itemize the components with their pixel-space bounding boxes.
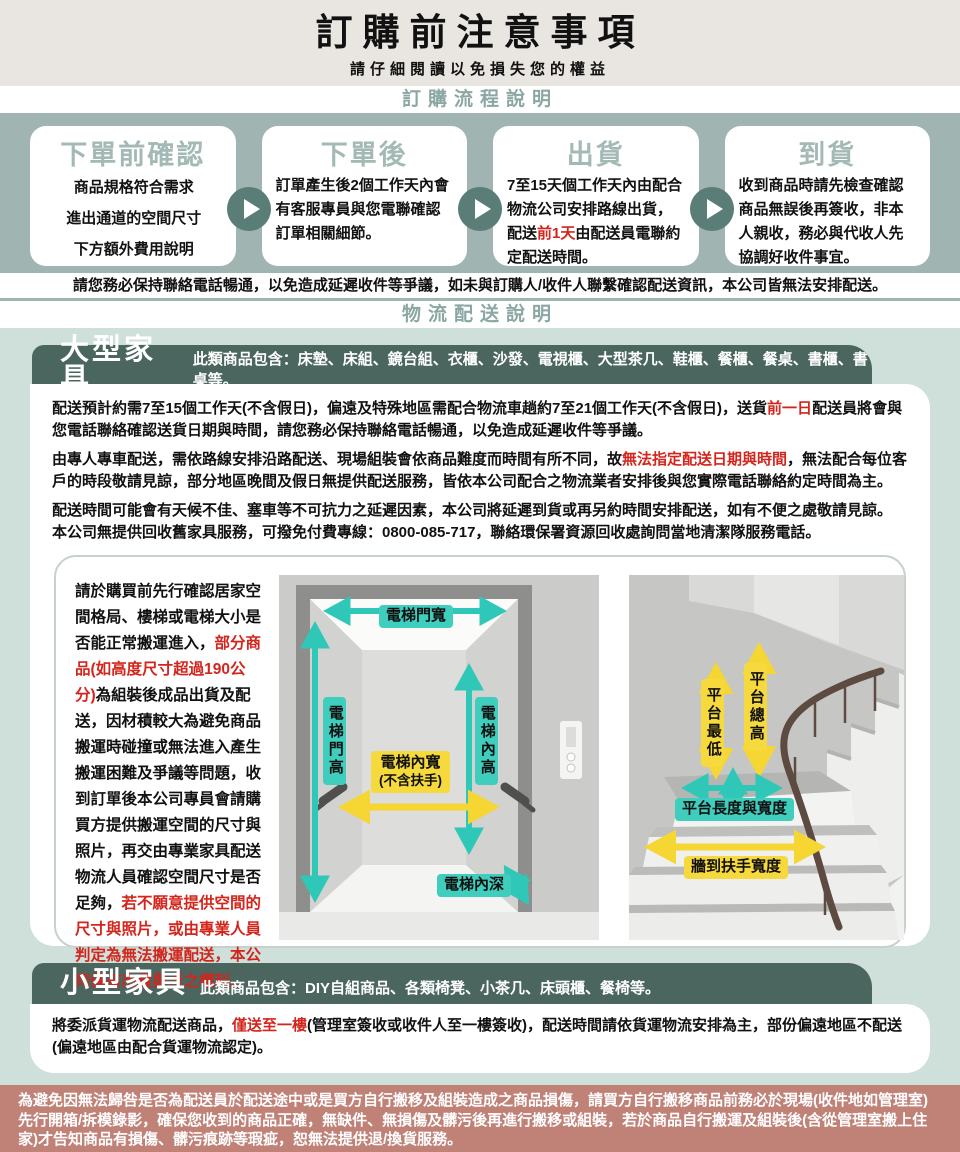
step-card-after-order: 下單後 訂單產生後2個工作天內會有客服專員與您電聯確認訂單相關細節。	[262, 126, 468, 266]
label-platform-total: 平台總高	[744, 663, 767, 751]
step-title: 出貨	[493, 133, 699, 172]
space-confirm-note: 請於購買前先行確認居家空間格局、樓梯或電梯大小是否能正常搬運進入，部分商品(如高…	[73, 575, 271, 946]
page-subtitle: 請仔細閱讀以免損失您的權益	[0, 58, 960, 79]
label-wall-to-rail-width: 牆到扶手寬度	[684, 856, 788, 879]
small-furniture-paragraph: 將委派貨運物流配送商品，僅送至一樓(管理室簽收或收件人至一樓簽收)，配送時間請依…	[52, 1015, 908, 1058]
process-steps-band: 下單前確認 商品規格符合需求進出通道的空間尺寸下方額外費用說明 下單後 訂單產生…	[0, 113, 960, 301]
step-body: 收到商品時請先檢查確認商品無誤後再簽收，非本人親收，務必與代收人先協調好收件事宜…	[725, 172, 931, 266]
contact-notice: 請您務必保持聯絡電話暢通，以免造成延遲收件等爭議，如未與訂購人/收件人聯繫確認配…	[0, 273, 960, 298]
step-title: 下單後	[262, 133, 468, 172]
process-steps-row: 下單前確認 商品規格符合需求進出通道的空間尺寸下方額外費用說明 下單後 訂單產生…	[30, 126, 930, 266]
label-elevator-inner-width-text: 電梯內寬	[380, 754, 440, 771]
label-platform-length-width: 平台長度與寬度	[675, 798, 794, 821]
large-furniture-title: 大型家具	[60, 336, 181, 394]
large-furniture-includes: 此類商品包含：床墊、床組、鏡台組、衣櫃、沙發、電視櫃、大型茶几、鞋櫃、餐櫃、餐桌…	[193, 340, 872, 390]
step-card-arrival: 到貨 收到商品時請先檢查確認商品無誤後再簽收，非本人親收，務必與代收人先協調好收…	[725, 126, 931, 266]
process-heading: 訂購流程說明	[0, 86, 960, 113]
label-elevator-door-height: 電梯門高	[323, 697, 346, 785]
label-elevator-inner-width: 電梯內寬 (不含扶手)	[371, 751, 450, 793]
delivery-paragraph-3: 配送時間可能會有天候不佳、塞車等不可抗力之延遲因素，本公司將延遲到貨或再另約時間…	[52, 500, 908, 543]
small-furniture-header: 小型家具 此類商品包含：DIY自組商品、各類椅凳、小茶几、床頭櫃、餐椅等。	[32, 963, 872, 1004]
label-elevator-inner-height: 電梯內高	[475, 697, 498, 785]
label-elevator-door-width: 電梯門寬	[379, 605, 453, 628]
step-card-shipping: 出貨 7至15天個工作天內由配合物流公司安排路線出貨，配送前1天由配送員電聯約定…	[493, 126, 699, 266]
pre-order-notice-page: 訂購前注意事項 請仔細閱讀以免損失您的權益 訂購流程說明 下單前確認 商品規格符…	[0, 0, 960, 1152]
step-body: 訂單產生後2個工作天內會有客服專員與您電聯確認訂單相關細節。	[262, 172, 468, 246]
delivery-paragraph-1: 配送預計約需7至15個工作天(不含假日)，偏遠及特殊地區需配合物流車趟約7至21…	[52, 398, 908, 441]
small-furniture-box: 將委派貨運物流配送商品，僅送至一樓(管理室簽收或收件人至一樓簽收)，配送時間請依…	[30, 1004, 930, 1073]
step-arrow-icon	[227, 187, 271, 231]
stairs-diagram: 平台最低 平台總高 平台長度與寬度 牆到扶手寬度	[629, 575, 904, 940]
large-furniture-header: 大型家具 此類商品包含：床墊、床組、鏡台組、衣櫃、沙發、電視櫃、大型茶几、鞋櫃、…	[32, 345, 872, 384]
label-elevator-inner-width-note: (不含扶手)	[379, 773, 442, 790]
delivery-paragraph-2: 由專人專車配送，需依路線安排沿路配送、現場組裝會依商品難度而時間有所不同，故無法…	[52, 449, 908, 492]
logistics-heading: 物流配送說明	[0, 301, 960, 328]
step-arrow-icon	[690, 187, 734, 231]
step-title: 到貨	[725, 133, 931, 172]
small-furniture-title: 小型家具	[60, 969, 188, 998]
step-card-before-order: 下單前確認 商品規格符合需求進出通道的空間尺寸下方額外費用說明	[30, 126, 236, 266]
page-title: 訂購前注意事項	[0, 13, 960, 54]
footer-warning: 為避免因無法歸咎是否為配送員於配送途中或是買方自行搬移及組裝造成之商品損傷，請買…	[0, 1085, 960, 1152]
step-title: 下單前確認	[30, 133, 236, 172]
small-furniture-includes: 此類商品包含：DIY自組商品、各類椅凳、小茶几、床頭櫃、餐椅等。	[200, 969, 660, 998]
label-platform-min: 平台最低	[701, 679, 724, 767]
elevator-diagram: 電梯門寬 電梯門高 電梯內高 電梯內寬 (不含扶手) 電梯內深	[279, 575, 599, 940]
label-elevator-inner-depth: 電梯內深	[437, 874, 511, 897]
page-header: 訂購前注意事項 請仔細閱讀以免損失您的權益	[0, 0, 960, 86]
step-body: 7至15天個工作天內由配合物流公司安排路線出貨，配送前1天由配送員電聯約定配送時…	[493, 172, 699, 266]
space-check-panel: 請於購買前先行確認居家空間格局、樓梯或電梯大小是否能正常搬運進入，部分商品(如高…	[54, 555, 906, 948]
step-body: 商品規格符合需求進出通道的空間尺寸下方額外費用說明	[30, 172, 236, 265]
stairs-illustration	[629, 575, 904, 940]
step-arrow-icon	[458, 187, 502, 231]
logistics-section: 大型家具 此類商品包含：床墊、床組、鏡台組、衣櫃、沙發、電視櫃、大型茶几、鞋櫃、…	[0, 328, 960, 1085]
large-furniture-box: 配送預計約需7至15個工作天(不含假日)，偏遠及特殊地區需配合物流車趟約7至21…	[30, 384, 930, 946]
